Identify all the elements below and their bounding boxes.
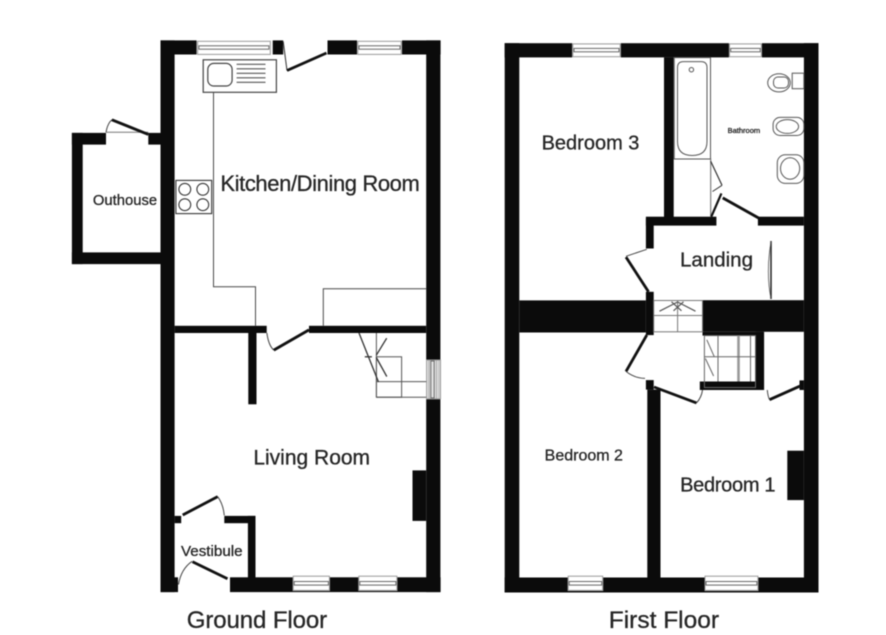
- svg-text:Kitchen/Dining Room: Kitchen/Dining Room: [220, 171, 419, 196]
- svg-text:Ground Floor: Ground Floor: [187, 607, 327, 634]
- svg-text:First Floor: First Floor: [609, 607, 719, 634]
- svg-text:Bedroom 3: Bedroom 3: [542, 133, 640, 155]
- svg-text:Bathroom: Bathroom: [728, 126, 761, 135]
- svg-text:Vestibule: Vestibule: [181, 543, 243, 560]
- svg-text:Bedroom 2: Bedroom 2: [545, 448, 623, 465]
- svg-text:Landing: Landing: [680, 249, 753, 272]
- svg-text:Outhouse: Outhouse: [93, 193, 157, 209]
- svg-text:Living Room: Living Room: [253, 447, 370, 470]
- svg-text:Bedroom 1: Bedroom 1: [680, 475, 775, 497]
